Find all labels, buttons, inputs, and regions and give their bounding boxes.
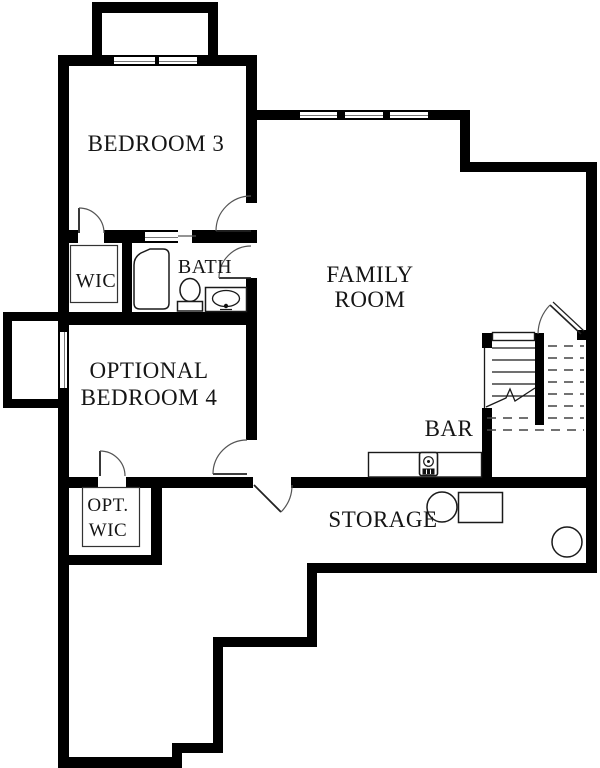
vanity-sink — [206, 288, 247, 312]
bathtub — [134, 249, 169, 309]
floorplan-canvas: BEDROOM 3 FAMILY ROOM WIC BATH OPTIONAL … — [0, 0, 600, 768]
room-label-wic: WIC — [58, 269, 134, 293]
doors — [79, 196, 584, 512]
stair-treads — [492, 348, 535, 396]
room-label-family-room: FAMILY ROOM — [297, 262, 443, 312]
room-label-bath: BATH — [165, 255, 245, 279]
stair-rail — [493, 333, 535, 341]
round-tank-fixture — [552, 527, 582, 557]
staircase — [485, 333, 585, 431]
door-swing-wic — [79, 208, 104, 233]
door-swing-storage — [254, 485, 292, 512]
room-label-opt-wic-line1: OPT. — [66, 493, 150, 518]
door-swing-opt-wic — [100, 451, 125, 476]
rect-equipment-fixture — [459, 493, 503, 523]
room-label-optional-bedroom4-line2: BEDROOM 4 — [60, 384, 238, 411]
room-label-bedroom3: BEDROOM 3 — [66, 131, 246, 156]
door-swing-bedroom3 — [216, 196, 251, 231]
stair-break-line — [486, 388, 535, 407]
bar-area — [369, 453, 482, 478]
faucet-dot — [224, 304, 228, 308]
room-label-opt-wic-line2: WIC — [66, 518, 150, 543]
door-swing-stairs — [538, 302, 584, 334]
room-label-family-room-line2: ROOM — [297, 287, 443, 312]
toilet — [178, 279, 203, 312]
room-label-optional-bedroom4-line1: OPTIONAL — [60, 357, 238, 384]
bar-sink — [420, 453, 438, 476]
stairs-above-dashed — [487, 346, 584, 430]
room-label-opt-wic: OPT. WIC — [66, 493, 150, 543]
room-label-family-room-line1: FAMILY — [297, 262, 443, 287]
door-swing-bedroom4 — [213, 440, 247, 474]
room-label-storage: STORAGE — [313, 507, 453, 532]
room-label-bar: BAR — [409, 416, 489, 441]
room-label-optional-bedroom4: OPTIONAL BEDROOM 4 — [60, 357, 238, 411]
